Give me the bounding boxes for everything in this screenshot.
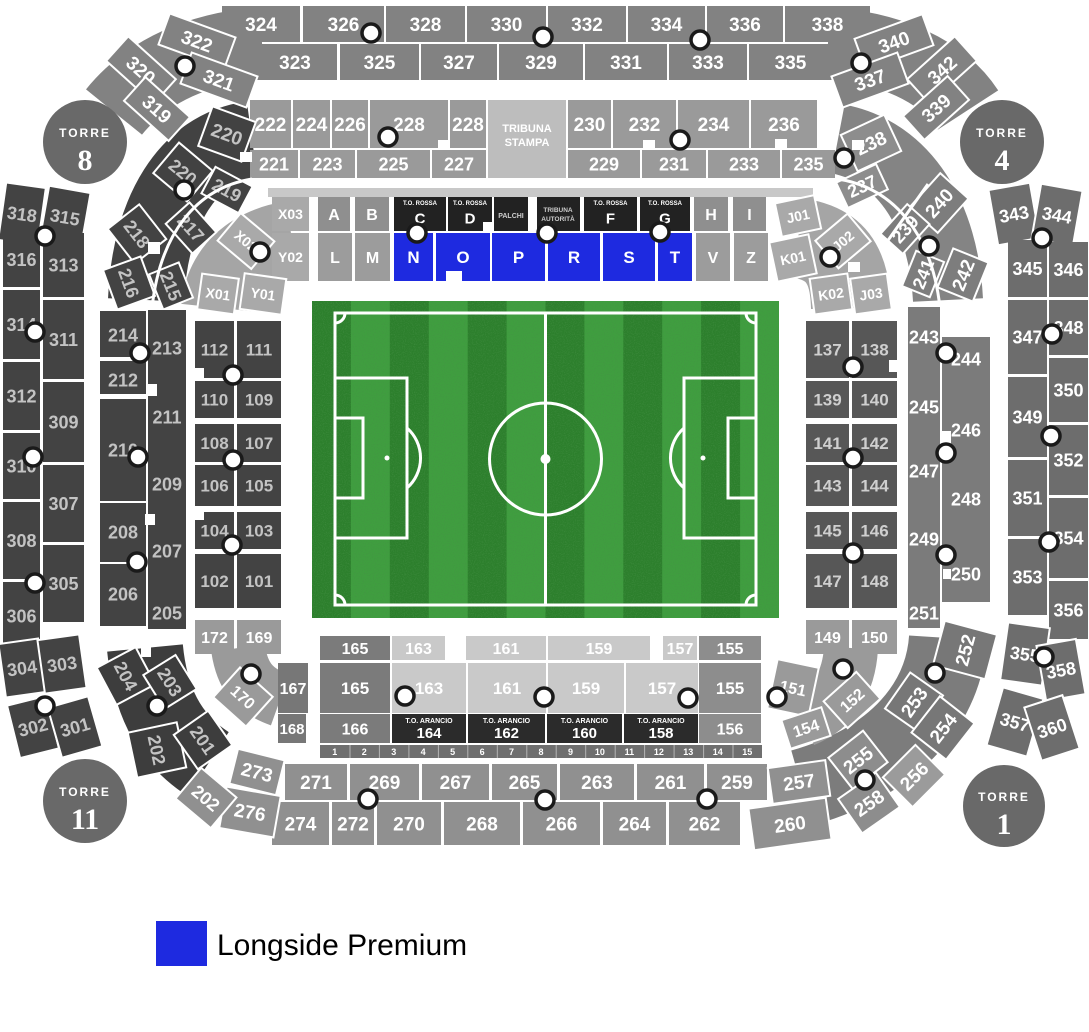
svg-text:103: 103: [245, 522, 273, 541]
svg-text:8: 8: [78, 144, 93, 177]
svg-text:205: 205: [152, 604, 182, 624]
svg-text:TRIBUNA: TRIBUNA: [543, 207, 573, 214]
svg-text:T.O. ARANCIO: T.O. ARANCIO: [561, 718, 609, 725]
svg-text:213: 213: [152, 339, 182, 359]
svg-text:161: 161: [493, 641, 520, 658]
svg-text:332: 332: [571, 15, 603, 36]
svg-text:271: 271: [300, 773, 332, 794]
svg-text:TORRE: TORRE: [59, 785, 111, 799]
svg-text:225: 225: [378, 155, 408, 175]
svg-text:155: 155: [716, 679, 744, 698]
svg-text:10: 10: [595, 747, 605, 757]
svg-text:243: 243: [909, 328, 939, 348]
svg-text:162: 162: [494, 725, 519, 742]
svg-text:307: 307: [48, 494, 78, 514]
svg-text:T: T: [670, 248, 681, 267]
svg-text:251: 251: [909, 604, 939, 624]
svg-text:15: 15: [742, 747, 752, 757]
svg-text:148: 148: [860, 572, 888, 591]
svg-text:228: 228: [452, 115, 484, 136]
svg-text:328: 328: [410, 15, 442, 36]
svg-text:147: 147: [813, 572, 841, 591]
svg-text:145: 145: [813, 522, 841, 541]
svg-text:M: M: [366, 250, 379, 267]
svg-text:T.O. ROSSA: T.O. ROSSA: [648, 201, 683, 207]
svg-text:156: 156: [717, 721, 744, 738]
svg-text:211: 211: [152, 408, 181, 428]
svg-text:D: D: [465, 211, 476, 228]
svg-text:172: 172: [201, 630, 228, 647]
svg-text:111: 111: [246, 341, 273, 360]
svg-text:STAMPA: STAMPA: [505, 137, 550, 149]
svg-text:Z: Z: [746, 250, 756, 267]
svg-text:250: 250: [951, 565, 981, 585]
svg-text:226: 226: [334, 115, 366, 136]
svg-text:4: 4: [995, 144, 1010, 177]
svg-text:1: 1: [332, 747, 337, 757]
svg-text:166: 166: [342, 721, 369, 738]
svg-text:Longside Premium: Longside Premium: [217, 929, 467, 962]
svg-text:6: 6: [480, 747, 485, 757]
svg-text:308: 308: [6, 531, 36, 551]
svg-text:144: 144: [860, 477, 889, 496]
svg-text:326: 326: [328, 15, 360, 36]
svg-text:356: 356: [1053, 601, 1083, 621]
svg-text:303: 303: [46, 653, 79, 677]
svg-text:P: P: [513, 248, 524, 267]
svg-text:325: 325: [364, 53, 396, 74]
svg-text:5: 5: [450, 747, 455, 757]
svg-text:247: 247: [909, 462, 939, 482]
svg-text:V: V: [708, 250, 719, 267]
svg-text:352: 352: [1053, 451, 1083, 471]
svg-text:H: H: [705, 207, 717, 224]
svg-text:353: 353: [1012, 568, 1042, 588]
svg-text:12: 12: [654, 747, 664, 757]
svg-text:B: B: [366, 207, 378, 224]
svg-text:L: L: [330, 250, 340, 267]
svg-text:248: 248: [951, 490, 981, 510]
svg-text:142: 142: [860, 434, 888, 453]
svg-text:PALCHI: PALCHI: [498, 213, 524, 220]
svg-text:305: 305: [48, 574, 78, 594]
svg-text:312: 312: [6, 387, 36, 407]
svg-text:T.O. ARANCIO: T.O. ARANCIO: [483, 718, 531, 725]
svg-text:230: 230: [574, 115, 606, 136]
svg-text:4: 4: [421, 747, 426, 757]
svg-text:209: 209: [152, 475, 182, 495]
svg-text:167: 167: [280, 681, 307, 698]
svg-text:259: 259: [721, 773, 753, 794]
svg-text:323: 323: [279, 53, 311, 74]
svg-text:141: 141: [813, 434, 841, 453]
svg-text:1: 1: [997, 808, 1012, 841]
svg-text:A: A: [328, 207, 340, 224]
svg-text:263: 263: [581, 773, 613, 794]
svg-text:X03: X03: [278, 206, 303, 222]
svg-text:333: 333: [692, 53, 724, 74]
svg-text:222: 222: [255, 115, 287, 136]
svg-text:T.O. ROSSA: T.O. ROSSA: [593, 201, 628, 207]
svg-text:324: 324: [245, 15, 277, 36]
svg-text:274: 274: [285, 814, 317, 835]
svg-text:228: 228: [393, 115, 425, 136]
svg-text:143: 143: [813, 477, 841, 496]
svg-text:105: 105: [245, 477, 273, 496]
svg-text:212: 212: [108, 371, 138, 391]
svg-text:249: 249: [909, 530, 939, 550]
svg-text:236: 236: [768, 115, 800, 136]
svg-text:306: 306: [6, 607, 36, 627]
svg-text:11: 11: [71, 803, 99, 836]
svg-text:160: 160: [572, 725, 597, 742]
svg-text:234: 234: [698, 115, 730, 136]
svg-text:13: 13: [683, 747, 693, 757]
svg-text:267: 267: [440, 773, 472, 794]
svg-text:169: 169: [246, 630, 273, 647]
svg-text:165: 165: [342, 641, 369, 658]
svg-text:335: 335: [775, 53, 807, 74]
svg-text:268: 268: [466, 814, 498, 835]
svg-text:11: 11: [625, 747, 635, 757]
svg-text:264: 264: [619, 814, 651, 835]
svg-text:138: 138: [860, 341, 888, 360]
svg-text:266: 266: [546, 814, 578, 835]
svg-text:311: 311: [49, 330, 78, 350]
svg-text:316: 316: [6, 250, 36, 270]
svg-text:261: 261: [655, 773, 687, 794]
svg-text:137: 137: [813, 341, 841, 360]
svg-text:159: 159: [572, 679, 600, 698]
svg-text:257: 257: [782, 771, 816, 796]
svg-text:232: 232: [629, 115, 661, 136]
svg-text:150: 150: [861, 630, 888, 647]
svg-text:2: 2: [362, 747, 367, 757]
svg-text:140: 140: [860, 391, 888, 410]
svg-text:330: 330: [491, 15, 523, 36]
svg-text:272: 272: [337, 814, 369, 835]
svg-text:347: 347: [1012, 328, 1042, 348]
svg-text:T.O. ARANCIO: T.O. ARANCIO: [637, 718, 685, 725]
svg-text:N: N: [407, 248, 419, 267]
svg-text:207: 207: [152, 542, 182, 562]
svg-text:338: 338: [812, 15, 844, 36]
svg-text:149: 149: [814, 630, 841, 647]
svg-text:110: 110: [201, 391, 228, 410]
svg-text:8: 8: [538, 747, 543, 757]
svg-text:157: 157: [667, 641, 694, 658]
svg-text:350: 350: [1053, 381, 1083, 401]
svg-text:158: 158: [648, 725, 673, 742]
svg-text:351: 351: [1012, 489, 1042, 509]
svg-text:T.O. ARANCIO: T.O. ARANCIO: [405, 718, 453, 725]
svg-text:3: 3: [391, 747, 396, 757]
svg-text:246: 246: [951, 421, 981, 441]
svg-text:TRIBUNA: TRIBUNA: [502, 123, 552, 135]
svg-text:157: 157: [648, 679, 676, 698]
svg-text:112: 112: [201, 341, 228, 360]
svg-text:F: F: [606, 211, 615, 228]
svg-text:214: 214: [108, 326, 138, 346]
svg-text:168: 168: [279, 721, 304, 738]
svg-text:I: I: [747, 207, 751, 224]
svg-text:224: 224: [296, 115, 328, 136]
svg-text:329: 329: [525, 53, 557, 74]
svg-text:159: 159: [586, 641, 613, 658]
svg-text:155: 155: [717, 641, 744, 658]
svg-text:14: 14: [713, 747, 723, 757]
svg-text:245: 245: [909, 398, 939, 418]
svg-text:233: 233: [729, 155, 759, 175]
svg-text:O: O: [456, 248, 469, 267]
svg-text:349: 349: [1012, 408, 1042, 428]
svg-text:T.O. ROSSA: T.O. ROSSA: [403, 201, 438, 207]
svg-text:221: 221: [259, 155, 289, 175]
svg-text:331: 331: [610, 53, 642, 74]
svg-text:TORRE: TORRE: [976, 126, 1028, 140]
svg-text:146: 146: [860, 522, 888, 541]
svg-text:346: 346: [1053, 260, 1083, 280]
svg-text:102: 102: [200, 572, 228, 591]
svg-text:313: 313: [48, 256, 78, 276]
svg-text:260: 260: [773, 813, 807, 838]
svg-text:AUTORITÀ: AUTORITÀ: [541, 214, 575, 223]
svg-text:161: 161: [493, 679, 521, 698]
svg-text:108: 108: [200, 434, 228, 453]
svg-text:206: 206: [108, 585, 138, 605]
svg-text:139: 139: [813, 391, 841, 410]
svg-text:163: 163: [415, 679, 443, 698]
svg-text:7: 7: [509, 747, 514, 757]
svg-text:265: 265: [509, 773, 541, 794]
svg-text:163: 163: [405, 641, 432, 658]
svg-text:165: 165: [341, 679, 369, 698]
svg-text:106: 106: [200, 477, 228, 496]
svg-text:223: 223: [312, 155, 342, 175]
svg-text:S: S: [623, 248, 634, 267]
svg-text:345: 345: [1012, 259, 1042, 279]
svg-text:R: R: [568, 248, 580, 267]
svg-text:164: 164: [416, 725, 442, 742]
svg-text:109: 109: [245, 391, 273, 410]
svg-text:231: 231: [659, 155, 689, 175]
svg-text:262: 262: [689, 814, 721, 835]
svg-text:334: 334: [651, 15, 683, 36]
svg-text:309: 309: [48, 413, 78, 433]
svg-text:208: 208: [108, 523, 138, 543]
svg-text:9: 9: [568, 747, 573, 757]
svg-text:Y02: Y02: [278, 249, 303, 265]
svg-text:270: 270: [393, 814, 425, 835]
svg-text:336: 336: [729, 15, 761, 36]
svg-text:235: 235: [793, 155, 823, 175]
svg-text:304: 304: [6, 657, 39, 681]
svg-text:T.O. ROSSA: T.O. ROSSA: [453, 201, 488, 207]
svg-text:229: 229: [589, 155, 619, 175]
svg-text:101: 101: [245, 572, 273, 591]
svg-text:227: 227: [444, 155, 474, 175]
svg-text:318: 318: [6, 203, 39, 227]
svg-text:TORRE: TORRE: [59, 126, 111, 140]
svg-text:107: 107: [245, 434, 273, 453]
svg-text:J03: J03: [858, 284, 884, 303]
svg-text:TORRE: TORRE: [978, 790, 1030, 804]
svg-text:327: 327: [443, 53, 475, 74]
